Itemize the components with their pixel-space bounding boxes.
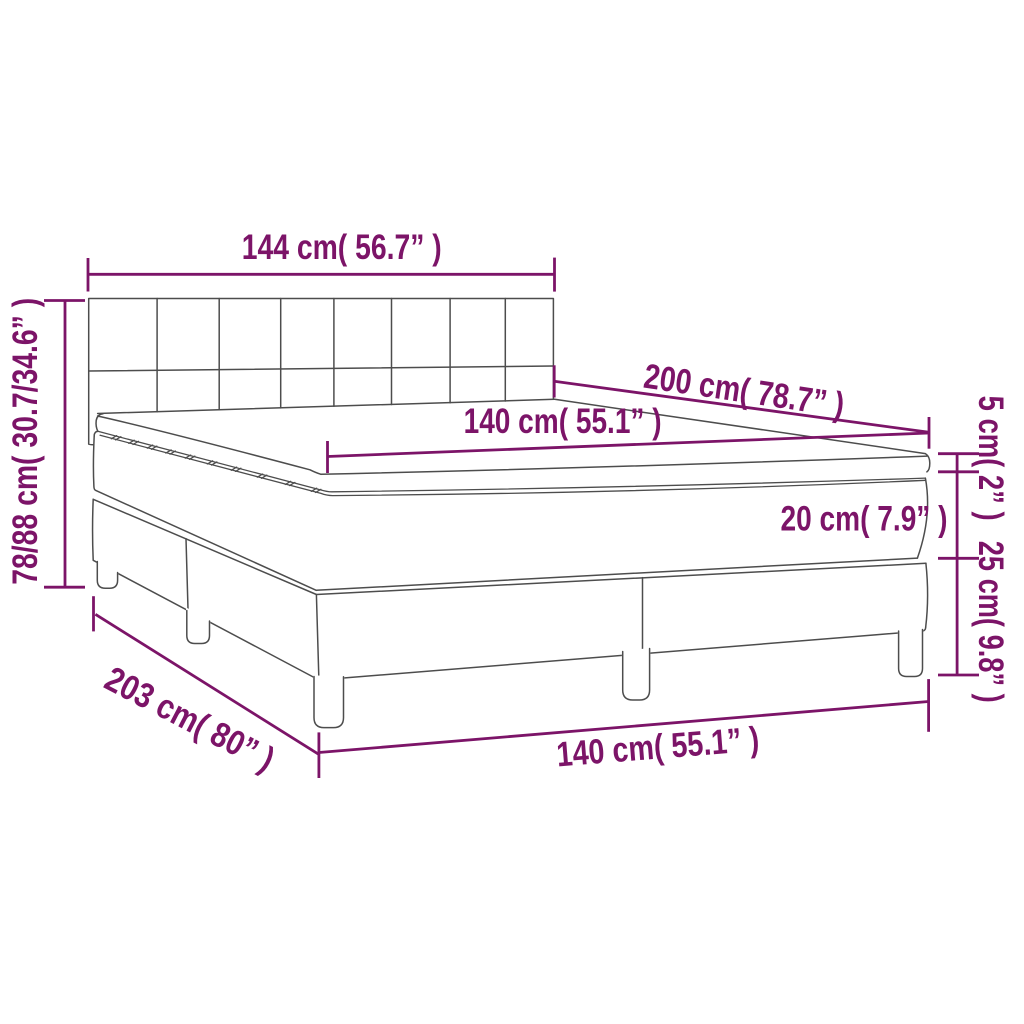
svg-text:5 cm( 2” ): 5 cm( 2” ) <box>971 396 1010 521</box>
svg-text:78/88 cm( 30.7/34.6” ): 78/88 cm( 30.7/34.6” ) <box>6 298 45 585</box>
svg-text:140 cm( 55.1” ): 140 cm( 55.1” ) <box>464 402 662 441</box>
svg-text:25 cm( 9.8” ): 25 cm( 9.8” ) <box>971 541 1010 703</box>
svg-text:20 cm( 7.9” ): 20 cm( 7.9” ) <box>781 500 948 539</box>
svg-text:144 cm( 56.7” ): 144 cm( 56.7” ) <box>242 228 442 267</box>
